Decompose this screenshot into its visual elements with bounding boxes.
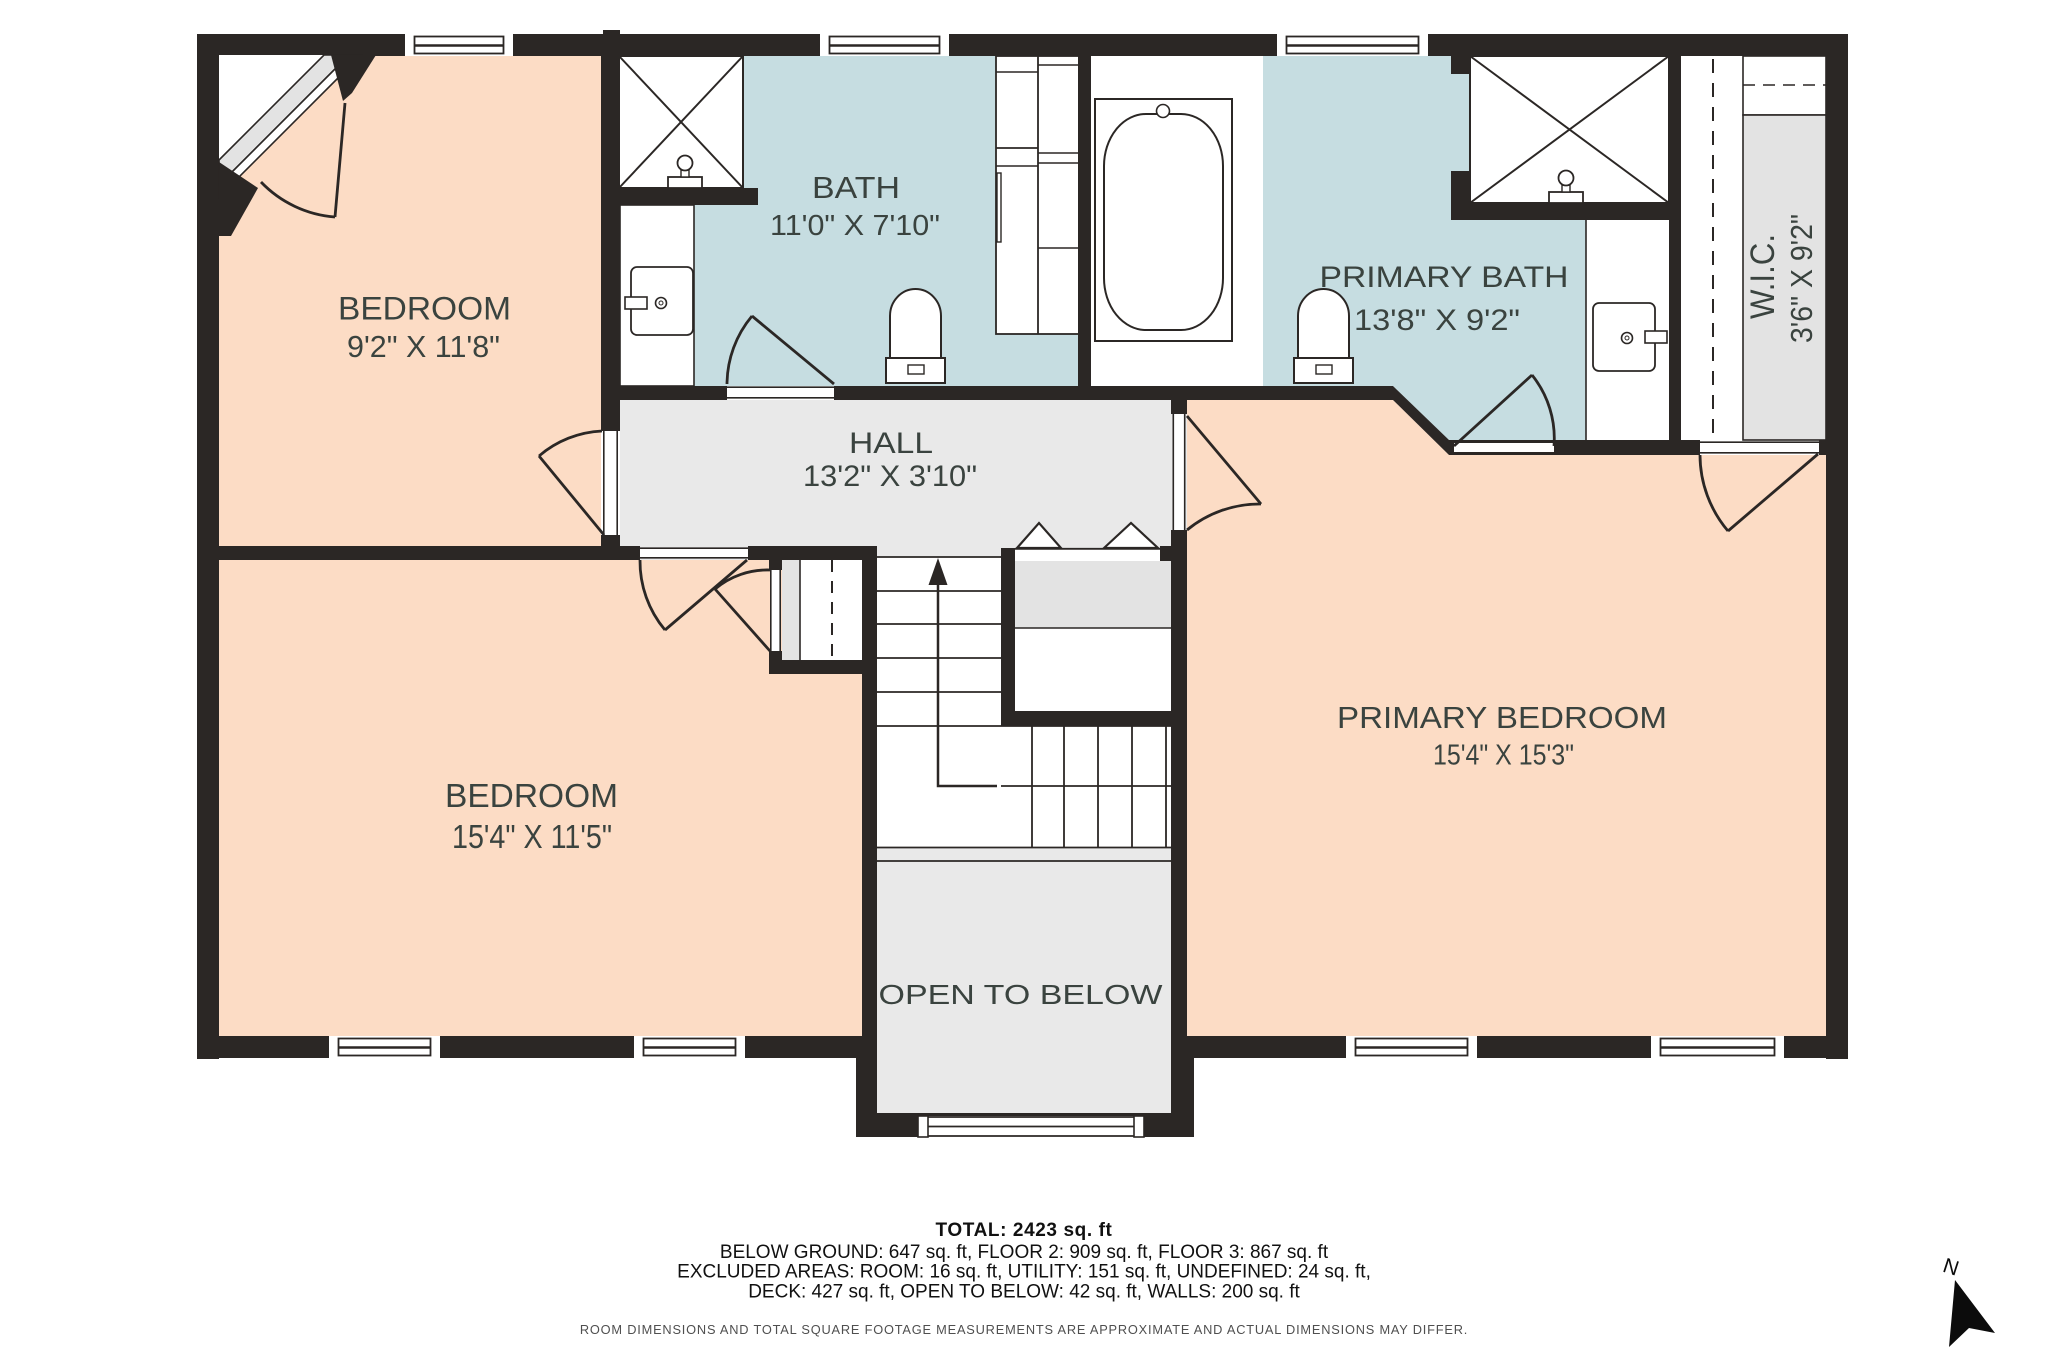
- svg-text:DECK: 427 sq. ft, OPEN TO BELO: DECK: 427 sq. ft, OPEN TO BELOW: 42 sq. …: [748, 1282, 1300, 1303]
- svg-text:9'2" X 11'8": 9'2" X 11'8": [347, 329, 500, 364]
- svg-text:BEDROOM: BEDROOM: [338, 291, 511, 327]
- svg-text:ROOM DIMENSIONS AND TOTAL SQUA: ROOM DIMENSIONS AND TOTAL SQUARE FOOTAGE…: [580, 1322, 1468, 1337]
- svg-text:TOTAL: 2423 sq. ft: TOTAL: 2423 sq. ft: [936, 1220, 1113, 1241]
- svg-text:OPEN TO BELOW: OPEN TO BELOW: [879, 979, 1163, 1010]
- svg-text:EXCLUDED AREAS: ROOM: 16 sq. f: EXCLUDED AREAS: ROOM: 16 sq. ft, UTILITY…: [677, 1262, 1371, 1283]
- svg-text:15'4" X 15'3": 15'4" X 15'3": [1433, 740, 1574, 772]
- svg-text:BATH: BATH: [812, 170, 900, 205]
- svg-text:W.I.C.: W.I.C.: [1744, 234, 1782, 319]
- svg-text:15'4" X 11'5": 15'4" X 11'5": [452, 818, 612, 855]
- svg-text:HALL: HALL: [849, 427, 933, 460]
- svg-text:PRIMARY BATH: PRIMARY BATH: [1320, 261, 1569, 294]
- svg-text:BEDROOM: BEDROOM: [445, 777, 618, 814]
- svg-text:11'0" X 7'10": 11'0" X 7'10": [770, 210, 940, 242]
- svg-text:13'2" X 3'10": 13'2" X 3'10": [803, 460, 977, 493]
- svg-text:PRIMARY BEDROOM: PRIMARY BEDROOM: [1337, 700, 1667, 735]
- svg-text:BELOW GROUND: 647 sq. ft, FLOO: BELOW GROUND: 647 sq. ft, FLOOR 2: 909 s…: [720, 1242, 1329, 1263]
- svg-text:13'8" X 9'2": 13'8" X 9'2": [1354, 304, 1520, 337]
- svg-text:3'6" X 9'2": 3'6" X 9'2": [1784, 214, 1819, 343]
